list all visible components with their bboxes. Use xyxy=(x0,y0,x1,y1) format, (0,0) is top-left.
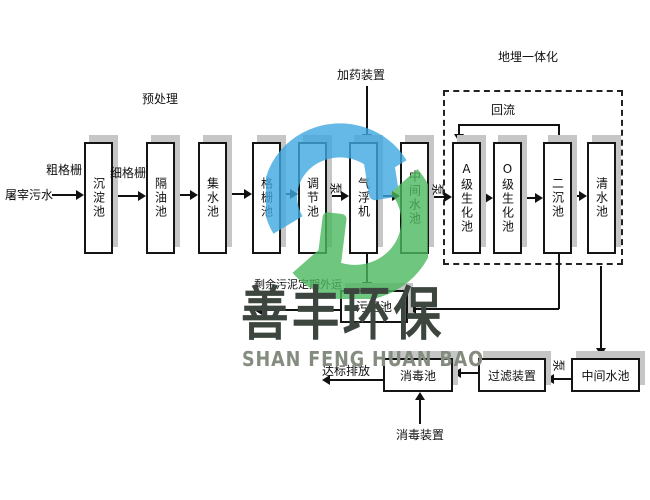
arrow-sedimentation-to-oil xyxy=(115,195,138,197)
arrow-dosing-down xyxy=(366,86,368,134)
fine-screen-label: 细格栅 xyxy=(110,164,146,181)
pump-label-3: 泵 xyxy=(551,359,568,371)
arrow-influent-to-sedimentation xyxy=(52,194,76,196)
coarse-screen-label: 粗格栅 xyxy=(46,161,82,178)
arrow-o-to-secondary xyxy=(524,197,535,199)
arrow-clear-to-intermediate2 xyxy=(600,266,602,348)
arrow-sludge-removal xyxy=(262,309,340,311)
disinfection-tank: 消毒池 xyxy=(383,358,453,392)
reflux-arrow-down xyxy=(458,124,460,134)
discharge-note: 达标排放 xyxy=(322,362,370,379)
arrow-regulating-to-flotation xyxy=(330,195,341,197)
arrow-oil-to-collecting xyxy=(177,194,190,196)
sludge-tank: 污泥池 xyxy=(340,290,408,323)
wastewater-process-flow-diagram: 屠宰污水 粗格栅 细格栅 预处理 加药装置 地埋一体化 回流 剩余污泥定期外运 … xyxy=(0,0,650,500)
a-stage-biochemical-tank: A级生化池 xyxy=(452,142,481,254)
influent-label: 屠宰污水 xyxy=(5,186,53,203)
pump-label-2: 泵 xyxy=(430,183,447,195)
intermediate-tank-2: 中间水池 xyxy=(571,358,640,392)
arrow-secondary-to-clear xyxy=(574,195,579,197)
arrow-a-to-o-stage xyxy=(481,197,485,199)
arrow-secondary-to-sludge xyxy=(416,308,559,310)
secondary-sedimentation-tank: 二沉池 xyxy=(543,142,572,254)
screen-tank: 格栅池 xyxy=(252,142,281,254)
arrow-collecting-to-screen xyxy=(231,193,244,195)
sedimentation-tank: 沉淀池 xyxy=(84,142,113,254)
reflux-line-up xyxy=(558,124,560,142)
arrow-disinfect-device-up xyxy=(419,400,421,424)
regulating-tank: 调节池 xyxy=(298,142,327,254)
intermediate-tank-1: 中间水池 xyxy=(400,142,429,254)
pump-label-1: 泵 xyxy=(328,182,345,194)
arrow-filter-to-disinfection xyxy=(461,372,478,374)
dosing-device-label: 加药装置 xyxy=(337,66,385,83)
oil-separation-tank: 隔油池 xyxy=(146,142,175,254)
sludge-removal-note: 剩余污泥定期外运 xyxy=(254,276,342,292)
arrow-intermediate2-to-filter xyxy=(554,378,571,380)
collecting-tank: 集水池 xyxy=(198,142,227,254)
arrow-screen-to-regulating xyxy=(283,193,290,195)
arrow-flotation-to-intermediate xyxy=(380,195,392,197)
pretreatment-label: 预处理 xyxy=(142,90,178,107)
air-flotation-unit: 气浮机 xyxy=(349,142,378,254)
arrow-discharge xyxy=(330,379,383,381)
line-secondary-down xyxy=(558,254,560,309)
filter-device: 过滤装置 xyxy=(478,358,546,392)
reflux-label: 回流 xyxy=(491,101,515,118)
o-stage-biochemical-tank: O级生化池 xyxy=(493,142,522,254)
arrow-flotation-to-sludge xyxy=(366,254,368,282)
clear-water-tank: 清水池 xyxy=(587,142,616,254)
arrow-intermediate-to-a-stage xyxy=(431,196,444,198)
reflux-line-across xyxy=(458,124,559,126)
disinfection-device-label: 消毒装置 xyxy=(396,426,444,443)
buried-integration-label: 地埋一体化 xyxy=(498,48,558,65)
